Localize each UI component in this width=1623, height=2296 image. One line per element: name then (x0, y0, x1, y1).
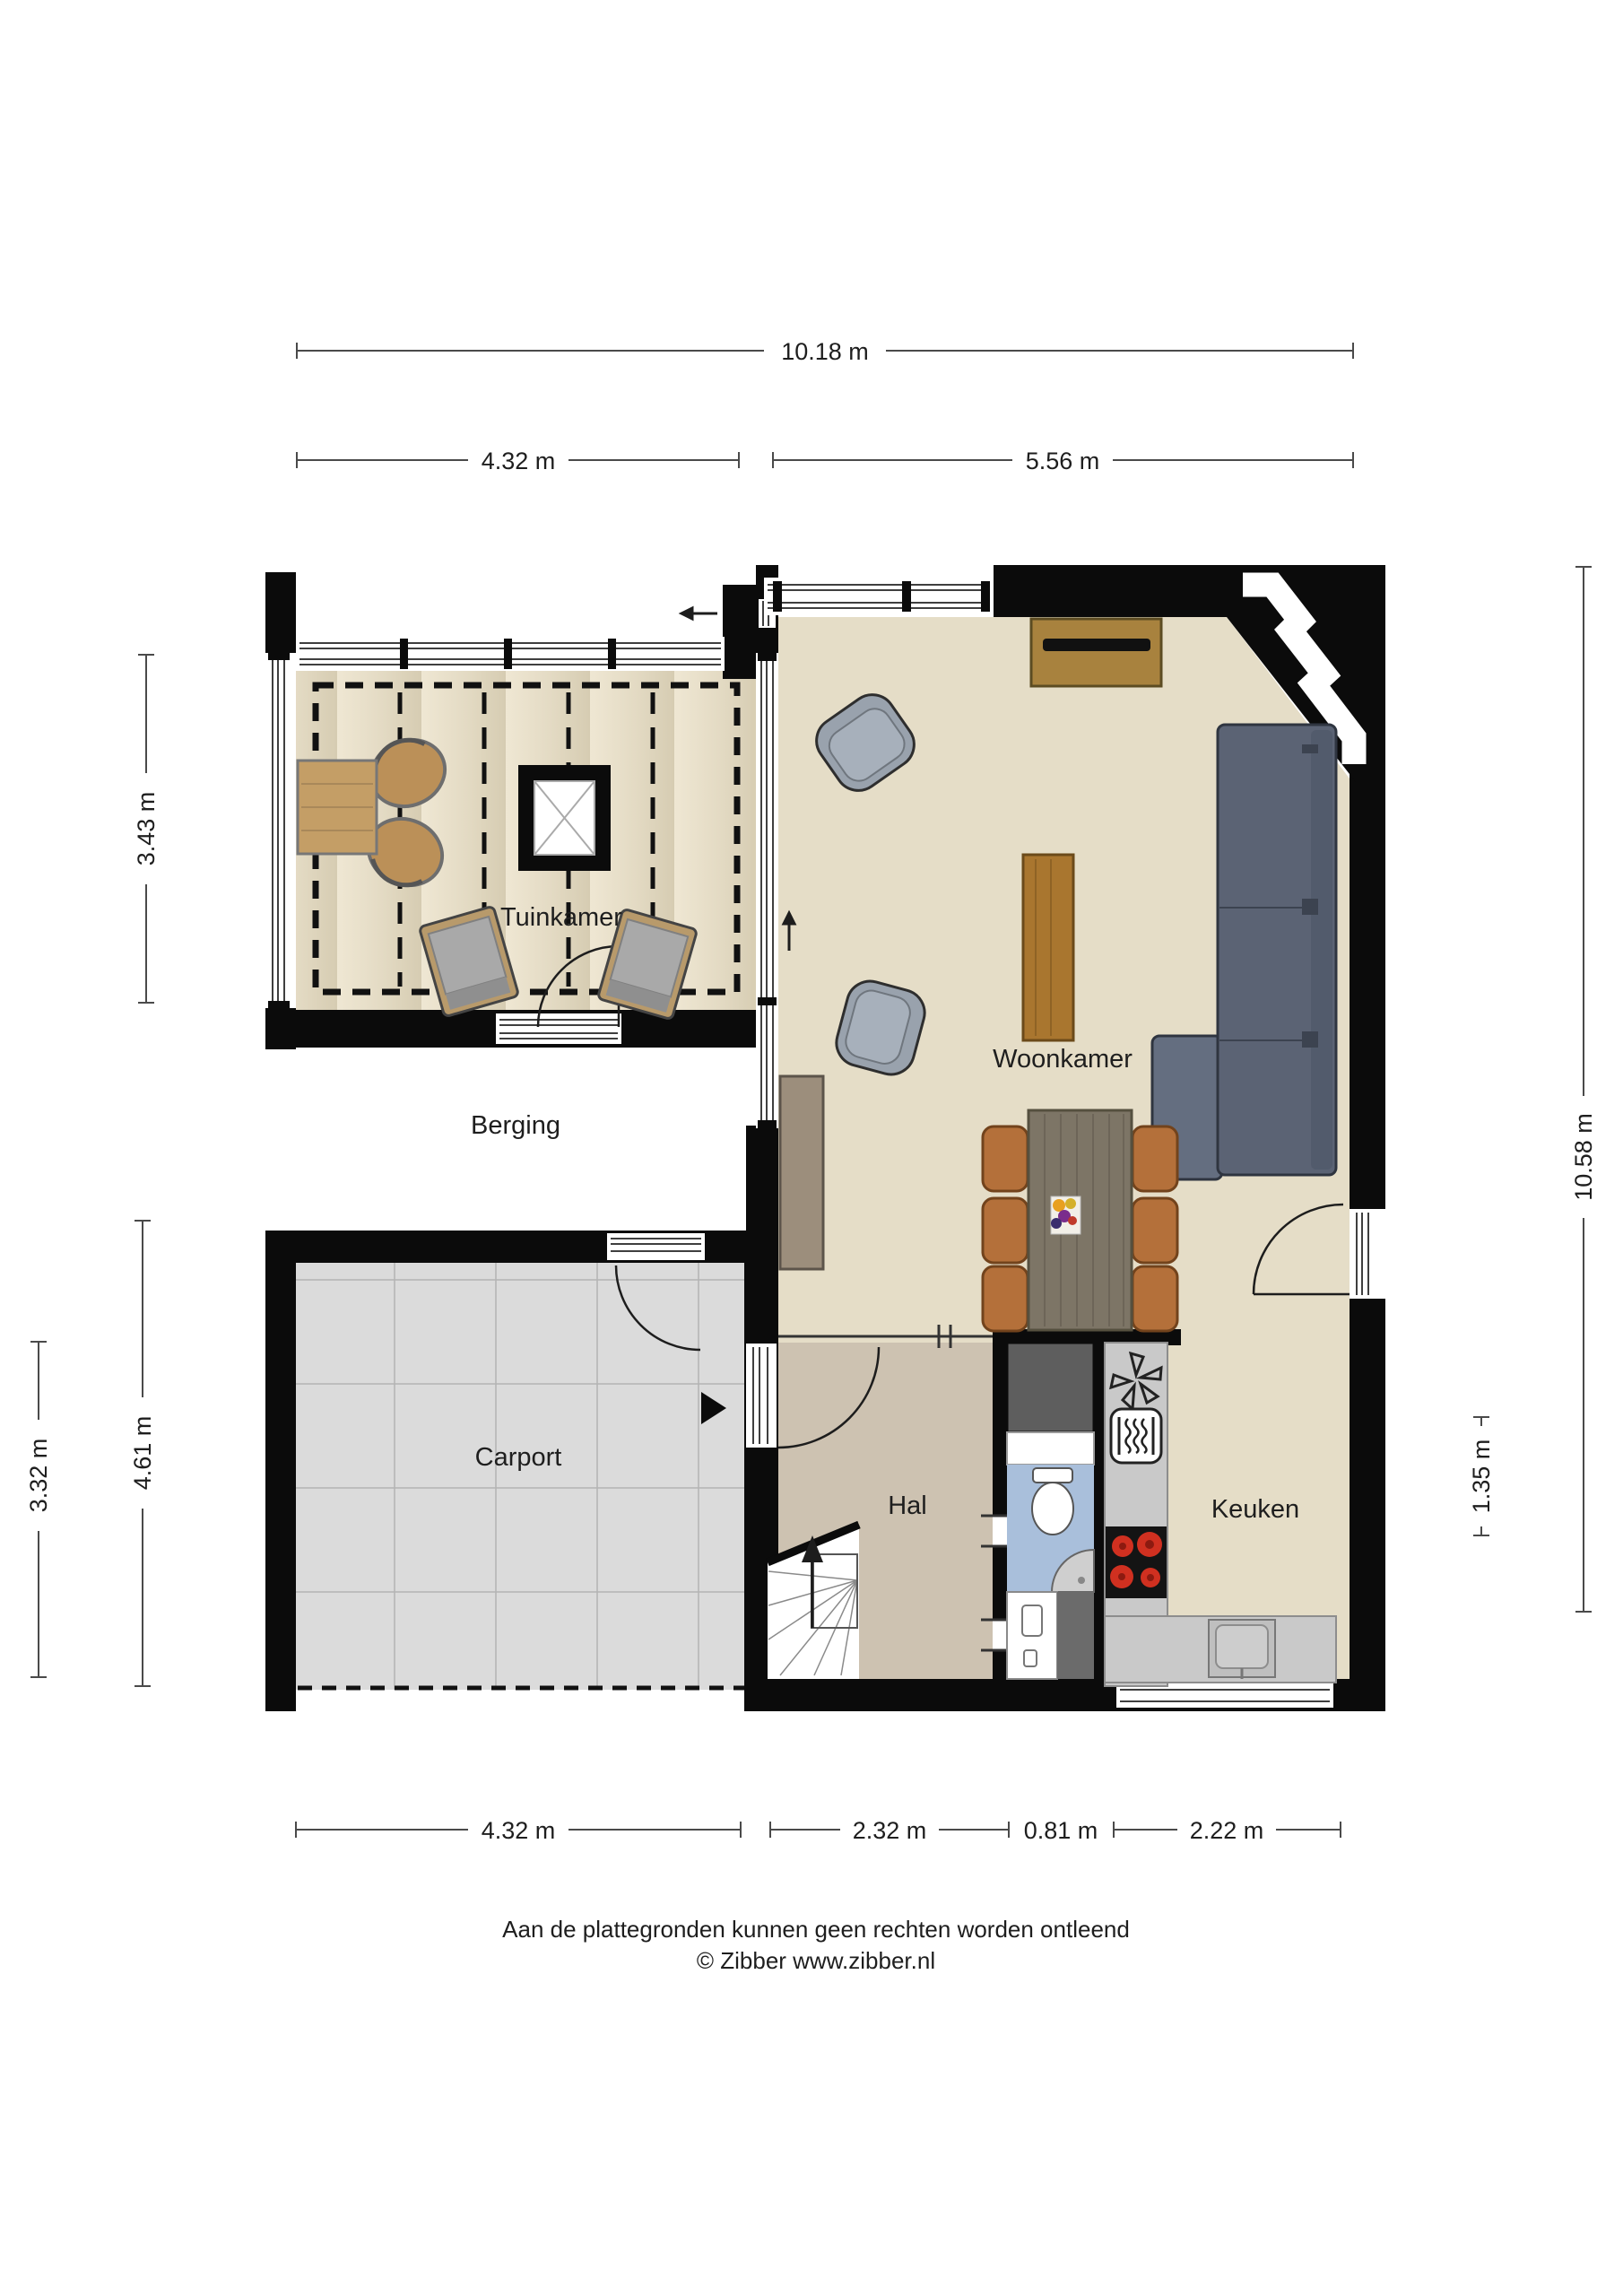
dimension-bottom-toilet: 0.81 m (1013, 1816, 1108, 1844)
boiler-fixture (1022, 1605, 1042, 1636)
dimension-bottom-carport: 4.32 m (296, 1816, 741, 1844)
tv (1043, 639, 1150, 651)
dimension-right-keuken: 1.35 m (1468, 1417, 1495, 1535)
dimension-top-left: 4.32 m (297, 447, 739, 474)
room-label-berging: Berging (471, 1111, 560, 1140)
svg-text:0.81 m: 0.81 m (1024, 1817, 1098, 1844)
small-fixture (1024, 1650, 1037, 1666)
svg-text:2.32 m: 2.32 m (853, 1817, 927, 1844)
dining-set (983, 1110, 1177, 1331)
floorplan-page: Tuinkamer Berging Woonkamer Carport Hal … (0, 0, 1623, 2296)
svg-text:1.35 m: 1.35 m (1468, 1439, 1495, 1514)
svg-text:4.61 m: 4.61 m (129, 1416, 156, 1491)
toilet-block (1007, 1343, 1094, 1679)
woonkamer-north-window (764, 578, 994, 615)
footer-disclaimer: Aan de plattegronden kunnen geen rechten… (502, 1916, 1130, 1943)
niche-shelf (1007, 1432, 1094, 1465)
dimension-top-right: 5.56 m (773, 447, 1353, 474)
tuinkamer-east-glass-wall (756, 653, 778, 1128)
skylight-icon (518, 765, 611, 871)
sideboard (780, 1076, 823, 1269)
floorplan-canvas: Tuinkamer Berging Woonkamer Carport Hal … (0, 0, 1623, 2296)
svg-text:10.58 m: 10.58 m (1570, 1113, 1597, 1201)
entrance-arrow-icon (681, 608, 717, 619)
tuinkamer-west-window (267, 653, 291, 1008)
dimension-bottom-hal: 2.32 m (770, 1816, 1009, 1844)
coffee-bench (1023, 855, 1073, 1040)
dimension-left-outer: 3.32 m (25, 1342, 52, 1677)
room-label-hal: Hal (888, 1492, 927, 1520)
cooktop-icon (1106, 1526, 1167, 1598)
dimension-right-total: 10.58 m (1570, 567, 1597, 1612)
room-label-keuken: Keuken (1211, 1495, 1299, 1524)
svg-text:10.18 m: 10.18 m (781, 338, 869, 365)
svg-text:2.22 m: 2.22 m (1190, 1817, 1264, 1844)
dimension-left-carport: 4.61 m (129, 1221, 156, 1686)
room-label-carport: Carport (475, 1443, 562, 1472)
dimension-left-tuinkamer: 3.43 m (133, 655, 160, 1003)
room-label-woonkamer: Woonkamer (993, 1045, 1133, 1074)
svg-text:3.43 m: 3.43 m (133, 792, 160, 866)
oven-icon (1111, 1409, 1161, 1463)
tuinkamer-north-window (296, 637, 725, 671)
svg-text:4.32 m: 4.32 m (482, 1817, 556, 1844)
footer-copyright: © Zibber www.zibber.nl (697, 1947, 935, 1974)
tv-cabinet (1031, 619, 1161, 686)
svg-text:4.32 m: 4.32 m (482, 448, 556, 474)
svg-text:5.56 m: 5.56 m (1026, 448, 1100, 474)
toilet-icon (1032, 1468, 1073, 1535)
dimension-bottom-keuken: 2.22 m (1114, 1816, 1341, 1844)
carport-floor (296, 1263, 744, 1690)
sink-icon (1209, 1620, 1275, 1679)
svg-text:3.32 m: 3.32 m (25, 1439, 52, 1513)
meter-closet (1007, 1343, 1094, 1432)
room-label-tuinkamer: Tuinkamer (500, 903, 622, 932)
fruit-bowl (1051, 1196, 1081, 1234)
lower-closet-dark (1057, 1592, 1094, 1679)
footer: Aan de plattegronden kunnen geen rechten… (502, 1916, 1130, 1974)
dimension-top-total: 10.18 m (297, 337, 1353, 365)
